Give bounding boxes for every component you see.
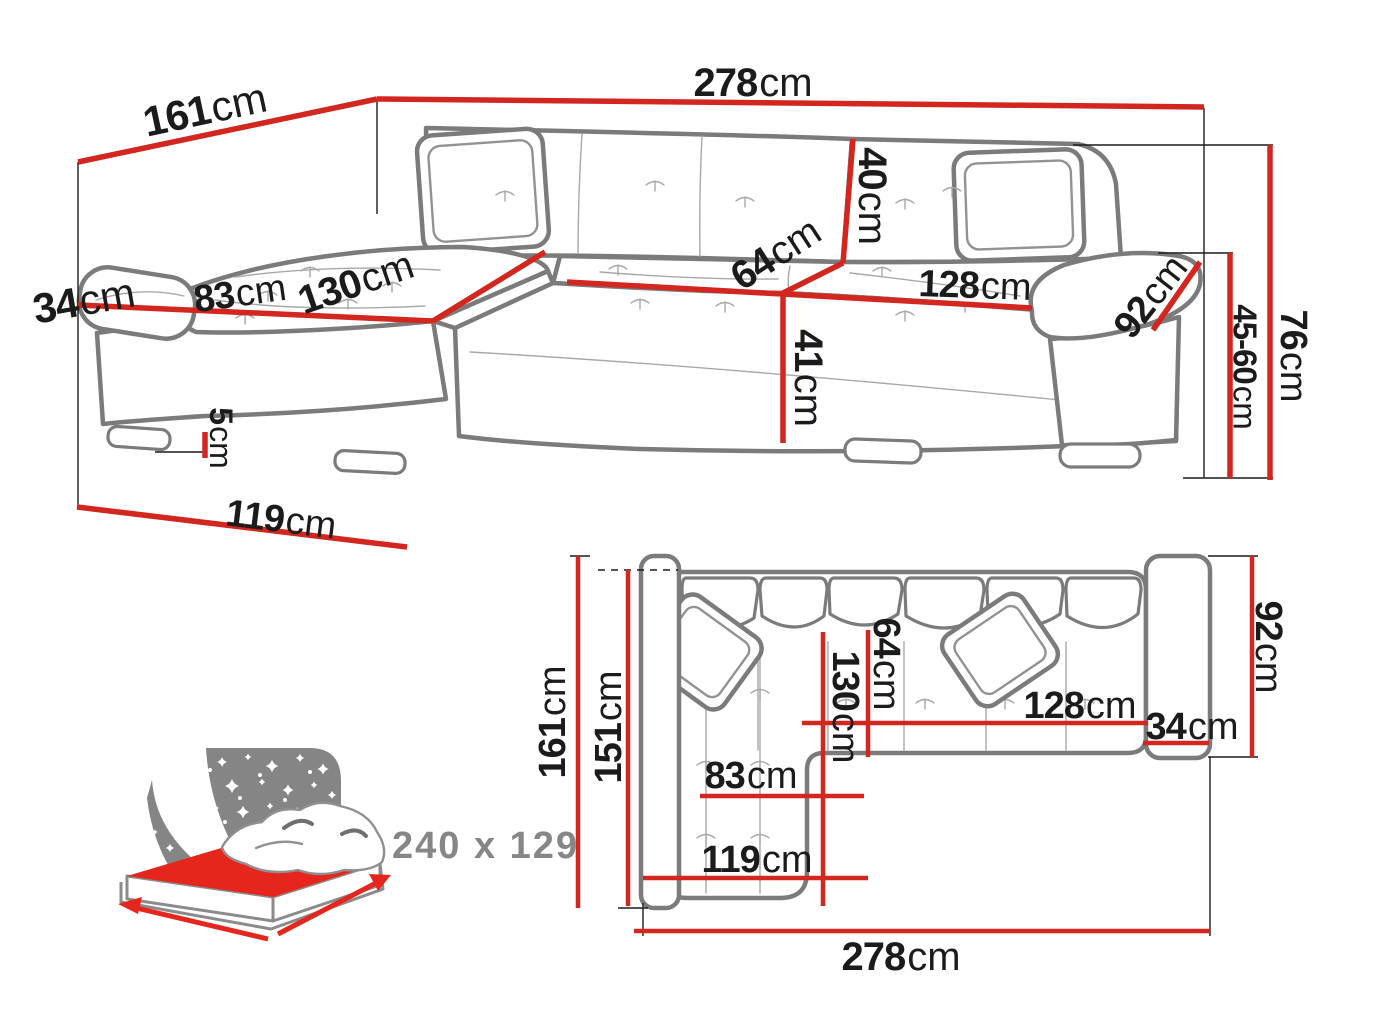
dim-92cm-plan: 92cm (1249, 601, 1287, 694)
dim-76cm-perspective: 76cm (1274, 310, 1312, 403)
dim-45-60cm-perspective: 45-60cm (1229, 304, 1262, 429)
dim-278cm-perspective: 278cm (693, 63, 812, 103)
corner-sofa-dimension-diagram: 161cm 278cm 34cm 83cm 130cm 40cm 64cm 41… (0, 0, 1373, 1030)
dim-278cm-plan: 278cm (841, 937, 960, 977)
dim-161cm-plan: 161cm (534, 665, 572, 778)
diagram-canvas (0, 0, 1373, 1030)
dim-40cm-perspective: 40cm (852, 147, 892, 245)
dim-128cm-plan: 128cm (1023, 687, 1136, 725)
dim-83cm-plan: 83cm (705, 757, 798, 795)
dim-5cm-perspective: 5cm (205, 407, 237, 468)
pillow-left-perspective (416, 128, 550, 255)
dim-41cm-perspective: 41cm (788, 329, 828, 427)
dim-130cm-plan: 130cm (826, 650, 864, 763)
dim-119cm-plan: 119cm (702, 841, 813, 879)
dim-128cm-perspective: 128cm (918, 265, 1032, 307)
dim-151cm-plan: 151cm (590, 670, 628, 783)
dim-64cm-plan: 64cm (867, 618, 905, 711)
dim-34cm-plan: 34cm (1146, 708, 1239, 746)
sleeping-area-size-label: 240 x 129 (392, 827, 579, 865)
pillow-right-perspective (953, 149, 1085, 261)
sleeping-area-icon (118, 748, 391, 939)
